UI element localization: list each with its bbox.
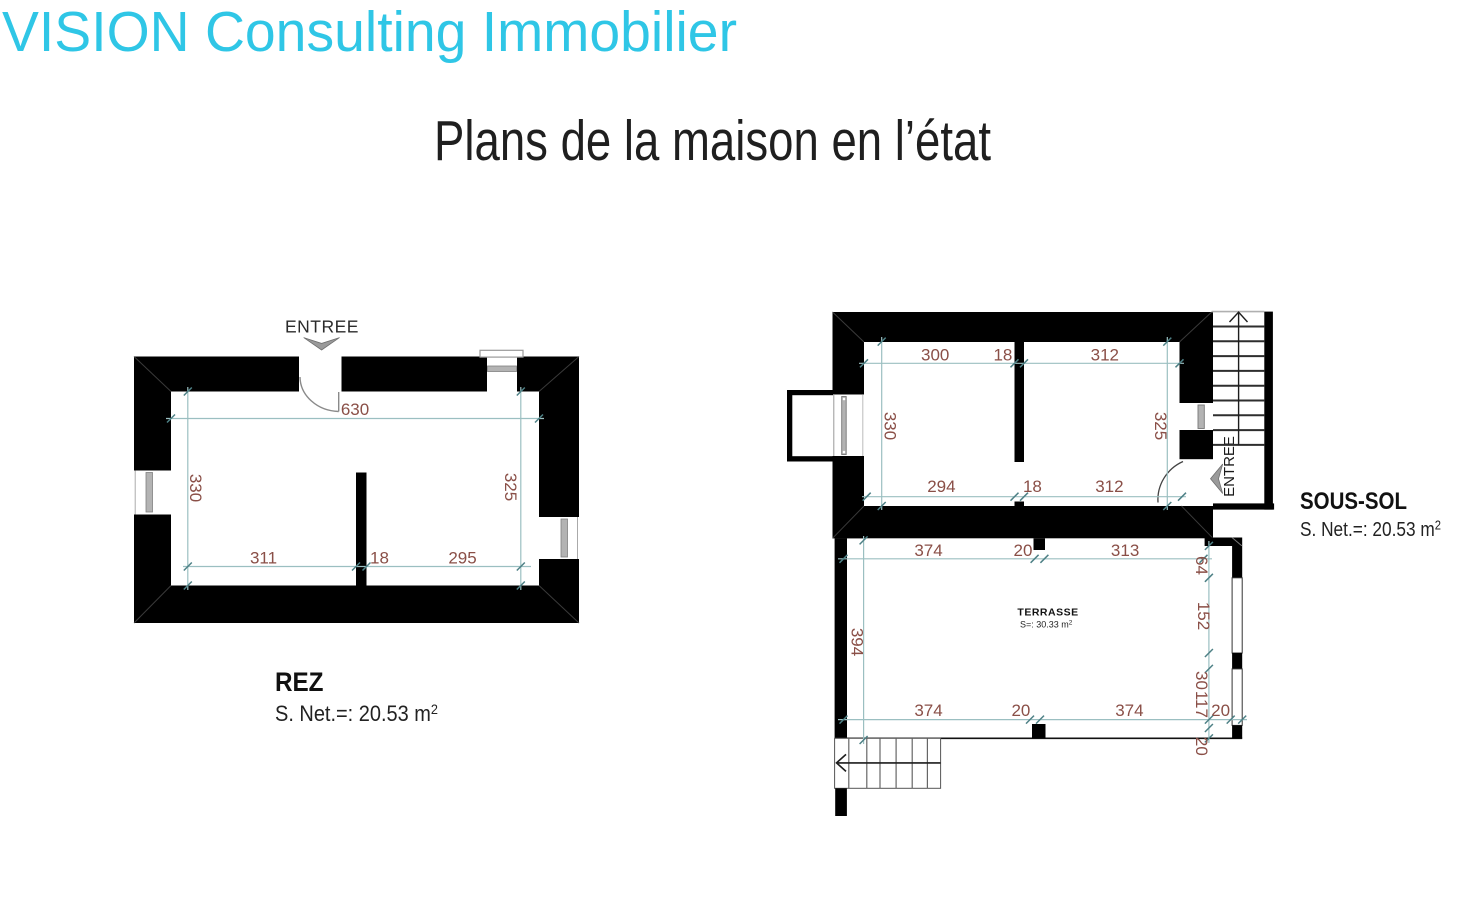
svg-text:325: 325	[1151, 412, 1170, 440]
svg-text:330: 330	[881, 412, 900, 440]
svg-text:294: 294	[927, 477, 955, 496]
svg-text:325: 325	[501, 473, 520, 501]
svg-text:152: 152	[1194, 602, 1213, 630]
svg-text:630: 630	[341, 400, 369, 419]
svg-text:311: 311	[250, 549, 277, 568]
svg-text:313: 313	[1111, 541, 1139, 560]
svg-text:117: 117	[1192, 691, 1211, 718]
svg-text:20: 20	[1011, 701, 1030, 720]
svg-text:20: 20	[1211, 701, 1230, 720]
svg-text:S. Net.=: 20.53 m2: S. Net.=: 20.53 m2	[1300, 518, 1441, 542]
svg-text:TERRASSE: TERRASSE	[1017, 607, 1078, 619]
svg-text:S=: 30.33 m2: S=: 30.33 m2	[1020, 620, 1073, 630]
svg-text:295: 295	[448, 549, 476, 568]
svg-text:374: 374	[914, 541, 942, 560]
svg-text:374: 374	[1115, 701, 1143, 720]
svg-text:18: 18	[993, 345, 1012, 364]
svg-text:Plans de la maison en l’état: Plans de la maison en l’état	[434, 109, 991, 173]
svg-text:30: 30	[1192, 671, 1211, 690]
svg-text:20: 20	[1192, 737, 1211, 756]
svg-text:312: 312	[1095, 477, 1123, 496]
svg-text:S. Net.=: 20.53 m2: S. Net.=: 20.53 m2	[275, 701, 438, 726]
svg-text:330: 330	[186, 474, 205, 502]
svg-text:20: 20	[1014, 541, 1033, 560]
svg-text:18: 18	[1023, 477, 1042, 496]
svg-text:18: 18	[370, 549, 389, 568]
svg-text:ENTREE: ENTREE	[285, 317, 359, 337]
svg-text:64: 64	[1192, 556, 1211, 575]
svg-text:394: 394	[848, 628, 867, 656]
svg-text:SOUS-SOL: SOUS-SOL	[1300, 488, 1407, 515]
svg-text:REZ: REZ	[275, 667, 324, 697]
svg-text:312: 312	[1091, 345, 1119, 364]
svg-text:VISION Consulting Immobilier: VISION Consulting Immobilier	[2, 0, 737, 64]
svg-text:374: 374	[914, 701, 942, 720]
svg-text:300: 300	[921, 345, 949, 364]
